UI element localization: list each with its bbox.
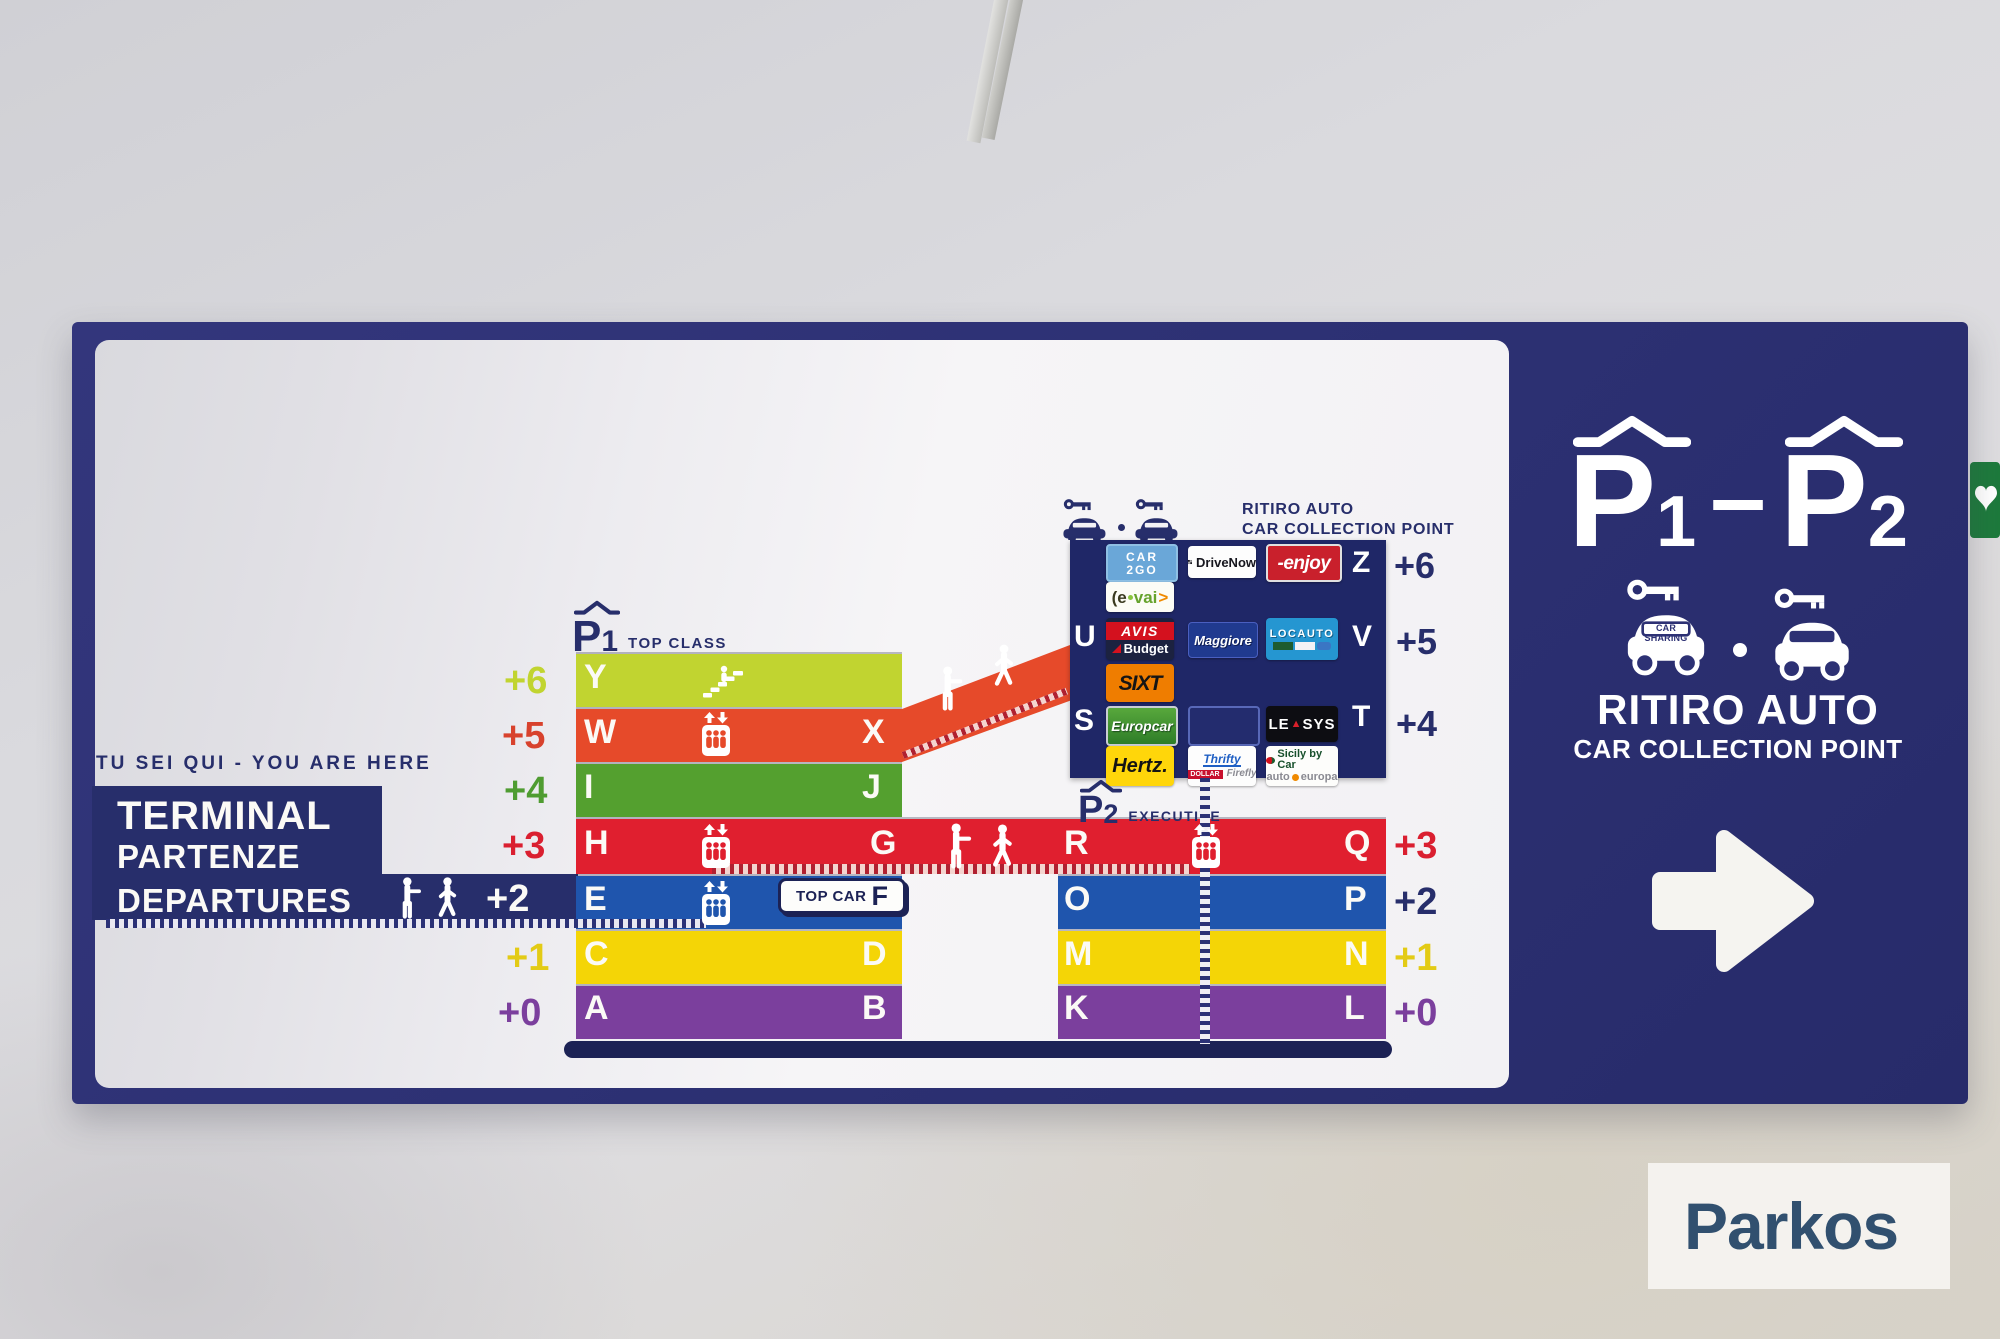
walk-path-vertical (1200, 778, 1210, 1044)
grid-level-6: +6 (1394, 548, 1435, 584)
level-number-right-2: +2 (1394, 883, 1437, 921)
floor-letter-q: Q (1344, 826, 1371, 860)
budget-triangle-icon (1112, 644, 1121, 653)
floor-row-c-d (576, 931, 902, 984)
base-bar (564, 1041, 1392, 1058)
p1-number-large: 1 (1656, 494, 1696, 552)
floor-row-o-p (1058, 876, 1386, 929)
grid-letter-t: T (1352, 702, 1370, 732)
level-number-right-0: +0 (1394, 994, 1437, 1032)
level-number-left-4: +4 (504, 772, 547, 810)
floor-letter-d: D (862, 937, 887, 971)
parkos-watermark: Parkos (1648, 1163, 1950, 1289)
person-pointing-icon (936, 666, 963, 711)
floor-row-i (576, 764, 902, 817)
locauto-logo: LOCAUTO (1266, 618, 1338, 660)
car-sharing-text: CAR SHARING (1642, 623, 1690, 643)
car2go-text-bottom: 2GO (1126, 564, 1157, 576)
level-number-right-3: +3 (1394, 827, 1437, 865)
grid-letter-u: U (1074, 622, 1096, 652)
floor-letter-x: X (862, 715, 885, 749)
floor-letter-p: P (1344, 882, 1367, 916)
level-number-left-3: +3 (502, 827, 545, 865)
autoeuropa-auto-text: auto (1267, 772, 1290, 783)
floor-letter-b: B (862, 991, 887, 1025)
person-walking-icon (434, 877, 461, 919)
elevator-icon (1191, 823, 1221, 869)
car-key-icon-large (1773, 585, 1851, 687)
floor-letter-m: M (1064, 937, 1093, 971)
p2-number: 2 (1103, 803, 1118, 826)
elevator-icon (701, 711, 731, 757)
direction-arrow-right (1642, 812, 1822, 990)
escalator-icon (702, 664, 744, 700)
elevator-icon (701, 880, 731, 926)
top-car-badge: TOP CAR F (778, 878, 906, 914)
collection-point-title-small: RITIRO AUTO (1242, 501, 1354, 519)
elevator-icon (701, 823, 731, 869)
collection-point-title: RITIRO AUTO (1520, 686, 1956, 734)
car2go-text-top: CAR (1126, 551, 1158, 563)
p2-number-large: 2 (1868, 494, 1908, 552)
evai-text: vai (1134, 589, 1158, 606)
floor-row-a-b (576, 986, 902, 1039)
dot-separator (1118, 524, 1125, 531)
floor-row-k-l (1058, 986, 1386, 1039)
level-number-left-0: +0 (498, 994, 541, 1032)
floor-letter-n: N (1344, 937, 1369, 971)
floor-letter-l: L (1344, 991, 1365, 1025)
avis-text: AVIS (1106, 622, 1174, 640)
leasys-text-le: LE (1268, 717, 1289, 732)
aed-heart-icon (1973, 484, 1999, 514)
p1-p2-lockup: P 1 – P 2 (1528, 414, 1948, 555)
floor-letter-o: O (1064, 882, 1091, 916)
floor-letter-h: H (584, 826, 609, 860)
level-number-right-1: +1 (1394, 939, 1437, 977)
locauto-partner-strip (1273, 642, 1331, 650)
you-are-here-label: TU SEI QUI - YOU ARE HERE (96, 753, 432, 775)
evai-text-open: (e (1112, 589, 1127, 606)
person-walking-icon (990, 644, 1018, 688)
p2-letter: P (1078, 795, 1103, 826)
floor-letter-c: C (584, 937, 609, 971)
photo-scene: TU SEI QUI - YOU ARE HERE TERMINAL PARTE… (0, 0, 2000, 1339)
level-number-left-5: +5 (502, 717, 545, 755)
empty-brand-box (1188, 706, 1260, 746)
europcar-logo: Europcar (1106, 706, 1178, 746)
p1-group: P 1 (1568, 414, 1696, 555)
p2-letter-large: P (1780, 447, 1868, 555)
drivenow-logo: DriveNow (1188, 546, 1256, 578)
maggiore-logo: Maggiore (1188, 622, 1258, 658)
sicilybycar-logo: Sicily by Car auto europa (1266, 746, 1338, 786)
p1-label: P 1 TOP CLASS (572, 617, 727, 655)
car-key-icon (1134, 498, 1182, 540)
enjoy-logo: -enjoy (1266, 544, 1342, 582)
top-car-badge-letter: F (871, 881, 888, 912)
evai-logo: (e vai > (1106, 582, 1174, 612)
hertz-text: Hertz. (1112, 756, 1168, 776)
top-car-badge-text: TOP CAR (796, 888, 866, 905)
floor-letter-r: R (1064, 826, 1089, 860)
autoeuropa-europa-text: europa (1301, 772, 1338, 783)
floor-row-m-n (1058, 931, 1386, 984)
grid-letter-s: S (1074, 706, 1094, 736)
terminal-title: TERMINAL (117, 794, 332, 839)
car2go-logo: CAR 2GO (1106, 544, 1178, 582)
firefly-text: Firefly (1227, 769, 1256, 779)
p1-class-name: TOP CLASS (628, 635, 727, 652)
car-icons-row: CAR SHARING (1538, 576, 1938, 687)
walk-path-terminal (106, 919, 706, 928)
floor-letter-k: K (1064, 991, 1089, 1025)
dash: – (1710, 448, 1766, 548)
floor-letter-e: E (584, 882, 607, 916)
grid-letter-v: V (1352, 622, 1372, 652)
thrifty-text: Thrifty (1203, 753, 1240, 767)
level-number-left-1: +1 (506, 939, 549, 977)
floor-letter-w: W (584, 715, 617, 749)
locauto-text: LOCAUTO (1270, 629, 1335, 640)
evai-text-arrow: > (1158, 589, 1168, 606)
drivenow-text: DriveNow (1196, 556, 1256, 569)
floor-letter-i: I (584, 770, 594, 804)
sicilybycar-text: Sicily by Car (1277, 749, 1338, 771)
car-sharing-icon: CAR SHARING (1625, 576, 1707, 687)
floor-letter-y: Y (584, 660, 607, 694)
floor-letter-j: J (862, 770, 881, 804)
europcar-text: Europcar (1111, 719, 1172, 733)
floor-letter-a: A (584, 991, 609, 1025)
p1-letter: P (572, 618, 601, 655)
leasys-text-sys: SYS (1303, 717, 1336, 732)
level-number-left-6: +6 (504, 662, 547, 700)
grid-letter-z: Z (1352, 548, 1370, 578)
enjoy-text: -enjoy (1278, 554, 1331, 573)
grid-level-4: +4 (1396, 706, 1437, 742)
evai-dot (1128, 595, 1133, 600)
floor-letter-g: G (870, 826, 897, 860)
budget-text: Budget (1124, 642, 1169, 655)
leasys-logo: LE ▲ SYS (1266, 706, 1338, 742)
sixt-text: SIXT (1119, 673, 1162, 694)
p1-number: 1 (601, 628, 618, 655)
terminal-departures: DEPARTURES (117, 882, 352, 920)
dot-separator-large (1733, 643, 1747, 657)
leasys-triangle: ▲ (1291, 719, 1302, 730)
person-pointing-icon (944, 823, 972, 869)
maggiore-text: Maggiore (1194, 634, 1252, 647)
floor-row-w (576, 709, 902, 762)
person-walking-icon (988, 824, 1017, 869)
p2-group: P 2 (1780, 414, 1908, 555)
avis-budget-logo: AVIS Budget (1106, 618, 1174, 660)
collection-point-subtitle: CAR COLLECTION POINT (1520, 734, 1956, 765)
drivenow-icon (1188, 557, 1192, 567)
terminal-partenze: PARTENZE (117, 838, 300, 876)
thrifty-dollar-firefly-logo: Thrifty DOLLAR Firefly (1188, 746, 1256, 786)
aed-sign (1970, 462, 2000, 538)
parkos-logo-text: Parkos (1684, 1188, 1898, 1264)
sixt-logo: SIXT (1106, 664, 1174, 702)
collection-point-subtitle-small: CAR COLLECTION POINT (1242, 521, 1454, 539)
person-pointing-icon (396, 877, 422, 919)
terminal-level-number: +2 (486, 880, 529, 918)
autoeuropa-dot-icon (1292, 774, 1299, 781)
grid-level-5: +5 (1396, 624, 1437, 660)
car-sharing-key-icon (1062, 498, 1110, 540)
sicilybycar-dot-icon (1266, 757, 1275, 764)
p1-letter-large: P (1568, 447, 1656, 555)
